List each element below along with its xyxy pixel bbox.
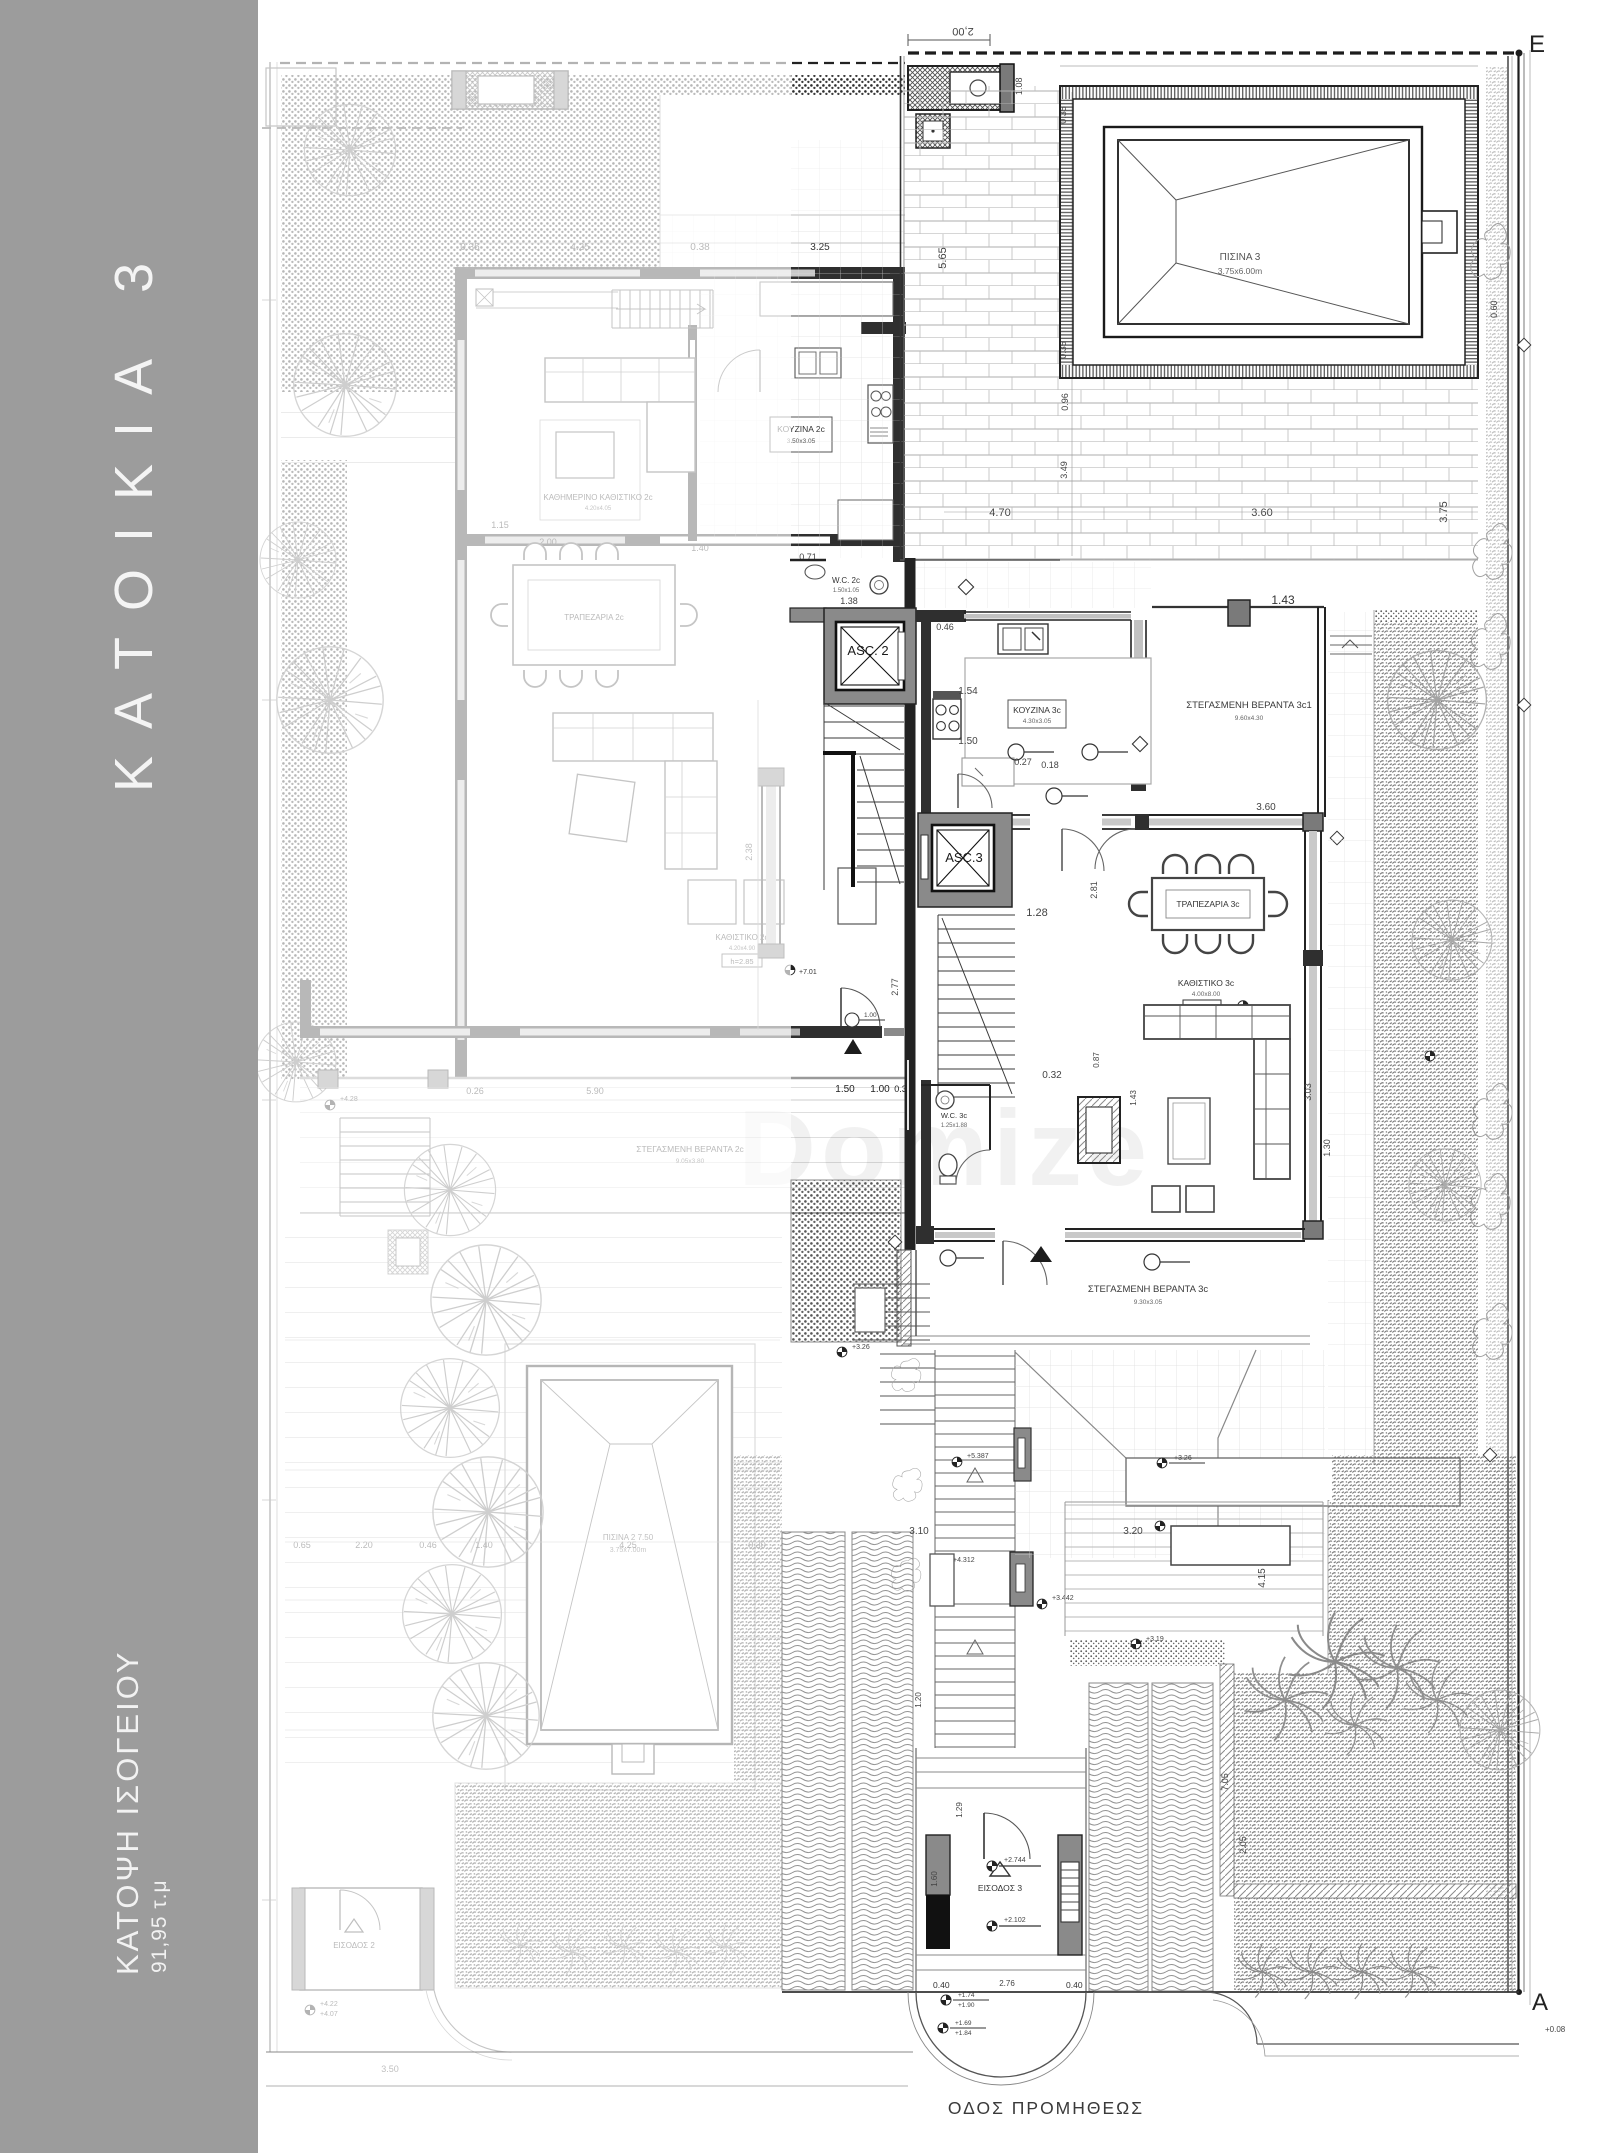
svg-text:ΣΤΕΓΑΣΜΕΝΗ ΒΕΡΑΝΤΑ 3c: ΣΤΕΓΑΣΜΕΝΗ ΒΕΡΑΝΤΑ 3c <box>1088 1284 1209 1295</box>
svg-text:+0.08: +0.08 <box>1545 2025 1566 2034</box>
svg-text:+1.69: +1.69 <box>955 2020 972 2027</box>
svg-text:7.05: 7.05 <box>1220 1773 1230 1791</box>
svg-text:91,95 τ.μ: 91,95 τ.μ <box>148 1879 171 1973</box>
svg-text:1.43: 1.43 <box>1129 1090 1138 1106</box>
svg-text:1.25x1.88: 1.25x1.88 <box>941 1123 968 1129</box>
svg-text:3.10: 3.10 <box>909 1526 929 1537</box>
svg-text:4.00x8.00: 4.00x8.00 <box>1192 991 1221 998</box>
svg-text:+2.102: +2.102 <box>1004 1917 1026 1924</box>
svg-text:1.38: 1.38 <box>840 596 858 606</box>
svg-text:+7.01: +7.01 <box>799 969 817 976</box>
svg-text:0.18: 0.18 <box>1041 760 1059 770</box>
svg-text:0.32: 0.32 <box>1042 1070 1062 1081</box>
svg-text:4.30x3.05: 4.30x3.05 <box>1023 718 1052 725</box>
svg-text:+3.19: +3.19 <box>1146 1636 1164 1643</box>
svg-text:ΕΙΣΟΔΟΣ 3: ΕΙΣΟΔΟΣ 3 <box>978 1883 1022 1893</box>
svg-text:ΟΔΟΣ ΠΡΟΜΗΘΕΩΣ: ΟΔΟΣ ΠΡΟΜΗΘΕΩΣ <box>948 2098 1144 2118</box>
svg-text:2,00: 2,00 <box>952 25 973 37</box>
svg-text:ΚΑΤΟΨΗ ΙΣΟΓΕΙΟΥ: ΚΑΤΟΨΗ ΙΣΟΓΕΙΟΥ <box>110 1650 145 1975</box>
svg-text:ΚΑΘΙΣΤΙΚΟ 3c: ΚΑΘΙΣΤΙΚΟ 3c <box>1178 978 1235 988</box>
svg-text:2.81: 2.81 <box>1089 881 1099 899</box>
svg-text:3.60: 3.60 <box>1256 802 1276 813</box>
svg-text:2.77: 2.77 <box>890 978 900 996</box>
svg-text:+1.90: +1.90 <box>958 2002 975 2009</box>
svg-text:1.20: 1.20 <box>914 1692 923 1708</box>
svg-text:1.43: 1.43 <box>1271 593 1295 607</box>
svg-text:0.46: 0.46 <box>936 622 954 632</box>
svg-text:+5.387: +5.387 <box>967 1453 989 1460</box>
svg-text:A: A <box>1532 1989 1548 2016</box>
svg-text:ASC.3: ASC.3 <box>945 850 983 865</box>
svg-text:+3.26: +3.26 <box>852 1344 870 1351</box>
svg-text:3.49: 3.49 <box>1059 461 1069 479</box>
svg-text:ΣΤΕΓΑΣΜΕΝΗ ΒΕΡΑΝΤΑ 3c1: ΣΤΕΓΑΣΜΕΝΗ ΒΕΡΑΝΤΑ 3c1 <box>1186 700 1312 711</box>
svg-text:4.15: 4.15 <box>1257 1568 1268 1588</box>
svg-text:W.C. 2c: W.C. 2c <box>832 576 860 585</box>
svg-text:0.27: 0.27 <box>1014 757 1032 767</box>
svg-text:ΚΑΤΟΙΚΙΑ 3: ΚΑΤΟΙΚΙΑ 3 <box>104 236 164 792</box>
svg-text:1.50x1.05: 1.50x1.05 <box>833 588 860 594</box>
svg-text:2.05: 2.05 <box>1238 1836 1248 1854</box>
svg-text:1.29: 1.29 <box>955 1802 964 1818</box>
svg-text:0.40: 0.40 <box>1066 1980 1083 1990</box>
svg-text:ΤΡΑΠΕΖΑΡΙΑ 3c: ΤΡΑΠΕΖΑΡΙΑ 3c <box>1176 899 1240 909</box>
svg-text:0.96: 0.96 <box>1060 393 1070 411</box>
svg-text:4.70: 4.70 <box>989 507 1010 519</box>
svg-text:1.28: 1.28 <box>1026 907 1047 919</box>
svg-text:2.76: 2.76 <box>999 1979 1015 1988</box>
svg-text:E: E <box>1529 31 1545 58</box>
svg-text:5.65: 5.65 <box>937 247 949 268</box>
svg-text:3.20: 3.20 <box>1123 1526 1143 1537</box>
svg-text:1.00: 1.00 <box>864 1012 877 1019</box>
svg-text:9.60x4.30: 9.60x4.30 <box>1235 715 1264 722</box>
svg-text:3.60: 3.60 <box>1251 507 1272 519</box>
svg-text:1.54: 1.54 <box>958 686 978 697</box>
svg-text:+4.312: +4.312 <box>953 1557 975 1564</box>
svg-text:+1.84: +1.84 <box>955 2030 972 2037</box>
svg-text:1.60: 1.60 <box>930 1871 939 1887</box>
svg-text:+1.74: +1.74 <box>958 1992 975 1999</box>
svg-text:0.60: 0.60 <box>1489 300 1499 318</box>
svg-text:ΚΟΥΖΙΝΑ 3c: ΚΟΥΖΙΝΑ 3c <box>1013 705 1061 715</box>
svg-text:ΠΙΣΙΝΑ 3: ΠΙΣΙΝΑ 3 <box>1220 252 1261 263</box>
svg-text:1.50: 1.50 <box>958 736 978 747</box>
svg-text:+3.26: +3.26 <box>1174 1455 1192 1462</box>
svg-text:0.87: 0.87 <box>1092 1052 1101 1068</box>
svg-text:ASC. 2: ASC. 2 <box>847 643 888 658</box>
svg-text:3.75x6.00m: 3.75x6.00m <box>1218 266 1262 276</box>
svg-text:0.40: 0.40 <box>933 1980 950 1990</box>
svg-text:W.C. 3c: W.C. 3c <box>941 1111 968 1120</box>
svg-text:+2.744: +2.744 <box>1004 1857 1026 1864</box>
svg-text:3.03: 3.03 <box>1303 1083 1313 1101</box>
svg-text:9.30x3.05: 9.30x3.05 <box>1134 1299 1163 1306</box>
